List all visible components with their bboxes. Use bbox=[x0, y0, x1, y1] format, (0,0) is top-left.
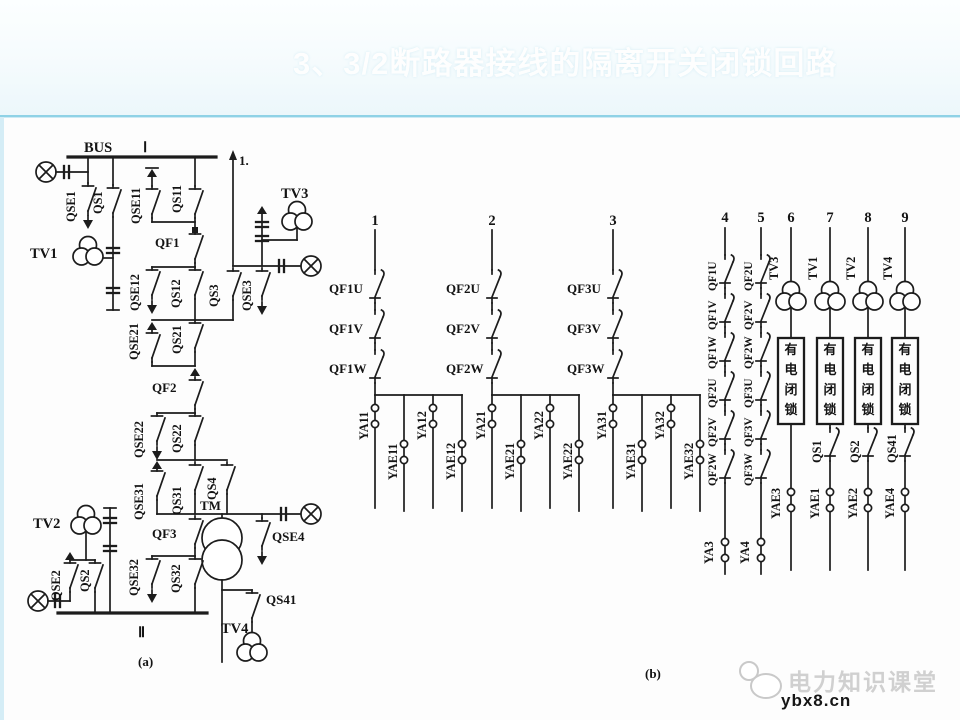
interlock-char: 锁 bbox=[823, 402, 836, 417]
tv1-label: TV1 bbox=[30, 246, 57, 262]
col2-coil-label: YA21 bbox=[474, 411, 488, 440]
breaker-qf2 bbox=[190, 377, 204, 409]
qf3-label: QF3 bbox=[152, 526, 177, 541]
col8-switch-label: QS2 bbox=[848, 440, 862, 463]
qs31-label: QS31 bbox=[170, 486, 184, 515]
col5-coil-label: YA4 bbox=[738, 541, 752, 564]
disconnector-qs12 bbox=[190, 267, 204, 299]
tv4-label: TV4 bbox=[221, 621, 248, 637]
col5-contact-label: QF2V bbox=[743, 300, 755, 330]
qse22-label: QSE22 bbox=[132, 421, 146, 458]
earth-switch-qse31 bbox=[152, 468, 166, 500]
feeder-label: 1. bbox=[239, 153, 249, 168]
col8-coil-label: YAE2 bbox=[846, 488, 860, 519]
col2-number: 2 bbox=[488, 213, 495, 229]
disconnector-qs21 bbox=[190, 320, 204, 352]
arrow-icon bbox=[257, 206, 267, 214]
earth-switch-qse22 bbox=[152, 413, 166, 460]
col3-coil-label: YAE32 bbox=[682, 443, 696, 480]
col4-contact-label: QF2V bbox=[707, 417, 719, 447]
lamp-icon bbox=[28, 591, 48, 611]
col8-tv-label: TV2 bbox=[844, 257, 858, 280]
earth-switch-qse4 bbox=[257, 518, 271, 565]
col2-coil-label: YAE21 bbox=[503, 443, 517, 480]
col2-contact-label: QF2W bbox=[446, 361, 484, 376]
qse21-label: QSE21 bbox=[127, 323, 141, 360]
col1-number: 1 bbox=[371, 213, 378, 229]
qf1-label: QF1 bbox=[155, 235, 180, 250]
earth-switch-qse12 bbox=[147, 267, 161, 314]
watermark-site: ybx8.cn bbox=[781, 691, 851, 710]
col5-contact-label: QF3W bbox=[743, 453, 755, 486]
diagram-b-columns-1-3 bbox=[370, 230, 704, 511]
qse3-label: QSE3 bbox=[240, 280, 254, 311]
arrow-icon bbox=[190, 368, 200, 376]
col3-contact-label: QF3U bbox=[567, 281, 602, 296]
col9-number: 9 bbox=[901, 210, 908, 226]
bus-I-label: Ⅰ bbox=[143, 140, 147, 156]
voltage-transformer-tv3-icon bbox=[776, 282, 806, 311]
voltage-transformer-tv4-icon bbox=[890, 282, 920, 311]
interlock-char: 有 bbox=[823, 342, 836, 357]
qse11-label: QSE11 bbox=[129, 188, 143, 224]
disconnector-qs11 bbox=[190, 186, 204, 218]
watermark: 电力知识课堂 ybx8.cn bbox=[740, 662, 938, 710]
lamp-icon bbox=[301, 504, 321, 524]
bus-II-label: Ⅱ bbox=[138, 625, 145, 641]
interlock-char: 有 bbox=[861, 342, 874, 357]
col6-tv-label: TV3 bbox=[767, 257, 781, 280]
transformer-tm-icon bbox=[202, 540, 242, 580]
col1-contact-label: QF1U bbox=[329, 281, 364, 296]
qse2-label: QSE2 bbox=[49, 570, 63, 601]
col5-number: 5 bbox=[757, 210, 764, 226]
interlock-char: 锁 bbox=[784, 402, 797, 417]
voltage-transformer-tv2-icon bbox=[71, 506, 101, 535]
caption-b: (b) bbox=[645, 666, 661, 681]
interlock-char: 电 bbox=[784, 362, 797, 377]
qs11-label: QS11 bbox=[170, 185, 184, 213]
col4-coil-label: YA3 bbox=[702, 541, 716, 564]
col2-contact-label: QF2U bbox=[446, 281, 481, 296]
disconnector-qs41 bbox=[247, 590, 261, 622]
col5-contact-label: QF3U bbox=[743, 379, 755, 409]
disconnector-qs4 bbox=[222, 462, 236, 494]
bus-label: BUS bbox=[84, 140, 112, 156]
tv2-label: TV2 bbox=[33, 516, 60, 532]
col4-contact-label: QF1V bbox=[707, 300, 719, 330]
col8-number: 8 bbox=[864, 210, 871, 226]
col3-coil-label: YA31 bbox=[595, 411, 609, 440]
col4-contact-label: QF1W bbox=[707, 336, 719, 369]
circuit-diagram: BUS Ⅰ 1. QSE1 QS1 TV1 QSE11 QS11 QF1 QSE… bbox=[0, 0, 960, 720]
interlock-char: 闭 bbox=[784, 382, 797, 397]
interlock-char: 有 bbox=[784, 342, 797, 357]
tv3-label: TV3 bbox=[281, 186, 308, 202]
breaker-qf3 bbox=[190, 516, 204, 548]
qs3-label: QS3 bbox=[207, 284, 221, 307]
watermark-logo-icon bbox=[751, 674, 781, 698]
disconnector-qs1 bbox=[108, 185, 122, 217]
earth-switch-qse11 bbox=[147, 186, 161, 218]
qse32-label: QSE32 bbox=[127, 559, 141, 596]
qs2-label: QS2 bbox=[78, 569, 92, 592]
col9-tv-label: TV4 bbox=[881, 257, 895, 280]
earth-switch-qse2 bbox=[65, 560, 79, 592]
col6-number: 6 bbox=[787, 210, 794, 226]
slide-page: 3、3/2断路器接线的隔离开关闭锁回路 bbox=[0, 0, 960, 720]
qs32-label: QS32 bbox=[169, 564, 183, 593]
col1-contact-label: QF1W bbox=[329, 361, 367, 376]
qs41-label: QS41 bbox=[266, 592, 296, 607]
interlock-char: 锁 bbox=[861, 402, 874, 417]
col7-switch-label: QS1 bbox=[810, 440, 824, 463]
col1-coil-label: YAE12 bbox=[444, 443, 458, 480]
earth-switch-qse21 bbox=[147, 330, 161, 362]
col7-tv-label: TV1 bbox=[806, 257, 820, 280]
col4-contact-label: QF2W bbox=[707, 453, 719, 486]
disconnector-qs3 bbox=[228, 268, 242, 300]
col9-coil-label: YAE4 bbox=[883, 488, 897, 519]
col3-contact-label: QF3V bbox=[567, 321, 602, 336]
col4-contact-label: QF2U bbox=[707, 379, 719, 409]
interlock-char: 电 bbox=[861, 362, 874, 377]
col3-contact-label: QF3W bbox=[567, 361, 605, 376]
col5-contact-label: QF2U bbox=[743, 262, 755, 292]
disconnector-qs31 bbox=[190, 462, 204, 494]
col1-contact-label: QF1V bbox=[329, 321, 364, 336]
qf2-label: QF2 bbox=[152, 380, 177, 395]
earth-switch-qse32 bbox=[147, 556, 161, 603]
interlock-char: 有 bbox=[898, 342, 911, 357]
breaker-qf1 bbox=[190, 231, 204, 263]
qse4-label: QSE4 bbox=[272, 529, 305, 544]
earth-arrow-icon bbox=[65, 552, 75, 560]
earth-switch-qse3 bbox=[257, 268, 271, 315]
interlock-char: 电 bbox=[823, 362, 836, 377]
diagram-a-labels: BUS Ⅰ 1. QSE1 QS1 TV1 QSE11 QS11 QF1 QSE… bbox=[30, 140, 308, 669]
col3-coil-label: YAE31 bbox=[624, 443, 638, 480]
col2-contact-label: QF2V bbox=[446, 321, 481, 336]
voltage-transformer-tv2-icon bbox=[853, 282, 883, 311]
disconnector-qs22 bbox=[190, 413, 204, 445]
qse31-label: QSE31 bbox=[132, 483, 146, 520]
qs12-label: QS12 bbox=[169, 279, 183, 308]
col4-number: 4 bbox=[721, 210, 728, 226]
col7-number: 7 bbox=[826, 210, 833, 226]
tm-label: TM bbox=[200, 498, 221, 513]
qse1-label: QSE1 bbox=[64, 191, 78, 222]
interlock-char: 闭 bbox=[861, 382, 874, 397]
qse12-label: QSE12 bbox=[128, 274, 142, 311]
interlock-char: 闭 bbox=[898, 382, 911, 397]
col1-coil-label: YAE11 bbox=[386, 444, 400, 480]
qs22-label: QS22 bbox=[170, 424, 184, 453]
earth-arrow-icon bbox=[147, 322, 157, 330]
earth-arrow-icon bbox=[147, 169, 157, 177]
col2-coil-label: YAE22 bbox=[561, 443, 575, 480]
col3-number: 3 bbox=[609, 213, 616, 229]
col9-switch-label: QS41 bbox=[885, 434, 899, 463]
col5-contact-label: QF2W bbox=[743, 336, 755, 369]
col1-coil-label: YA11 bbox=[357, 412, 371, 440]
voltage-transformer-tv3-icon bbox=[282, 202, 312, 231]
interlock-char: 闭 bbox=[823, 382, 836, 397]
qs21-label: QS21 bbox=[170, 325, 184, 354]
qs1-label: QS1 bbox=[91, 191, 105, 214]
interlock-char: 锁 bbox=[898, 402, 911, 417]
col4-contact-label: QF1U bbox=[707, 262, 719, 292]
col7-coil-label: YAE1 bbox=[808, 488, 822, 519]
feeder-arrow-icon bbox=[229, 150, 237, 160]
voltage-transformer-tv1-icon bbox=[73, 237, 103, 266]
voltage-transformer-tv1-icon bbox=[815, 282, 845, 311]
qs4-label: QS4 bbox=[205, 477, 219, 500]
col6-coil-label: YAE3 bbox=[769, 488, 783, 519]
lamp-icon bbox=[36, 162, 56, 182]
lamp-icon bbox=[301, 256, 321, 276]
col3-coil-label: YA32 bbox=[653, 411, 667, 440]
col5-contact-label: QF3V bbox=[743, 417, 755, 447]
disconnector-qs32 bbox=[190, 556, 204, 588]
col2-coil-label: YA22 bbox=[532, 411, 546, 440]
caption-a: (a) bbox=[138, 654, 153, 669]
col1-coil-label: YA12 bbox=[415, 411, 429, 440]
interlock-char: 电 bbox=[898, 362, 911, 377]
